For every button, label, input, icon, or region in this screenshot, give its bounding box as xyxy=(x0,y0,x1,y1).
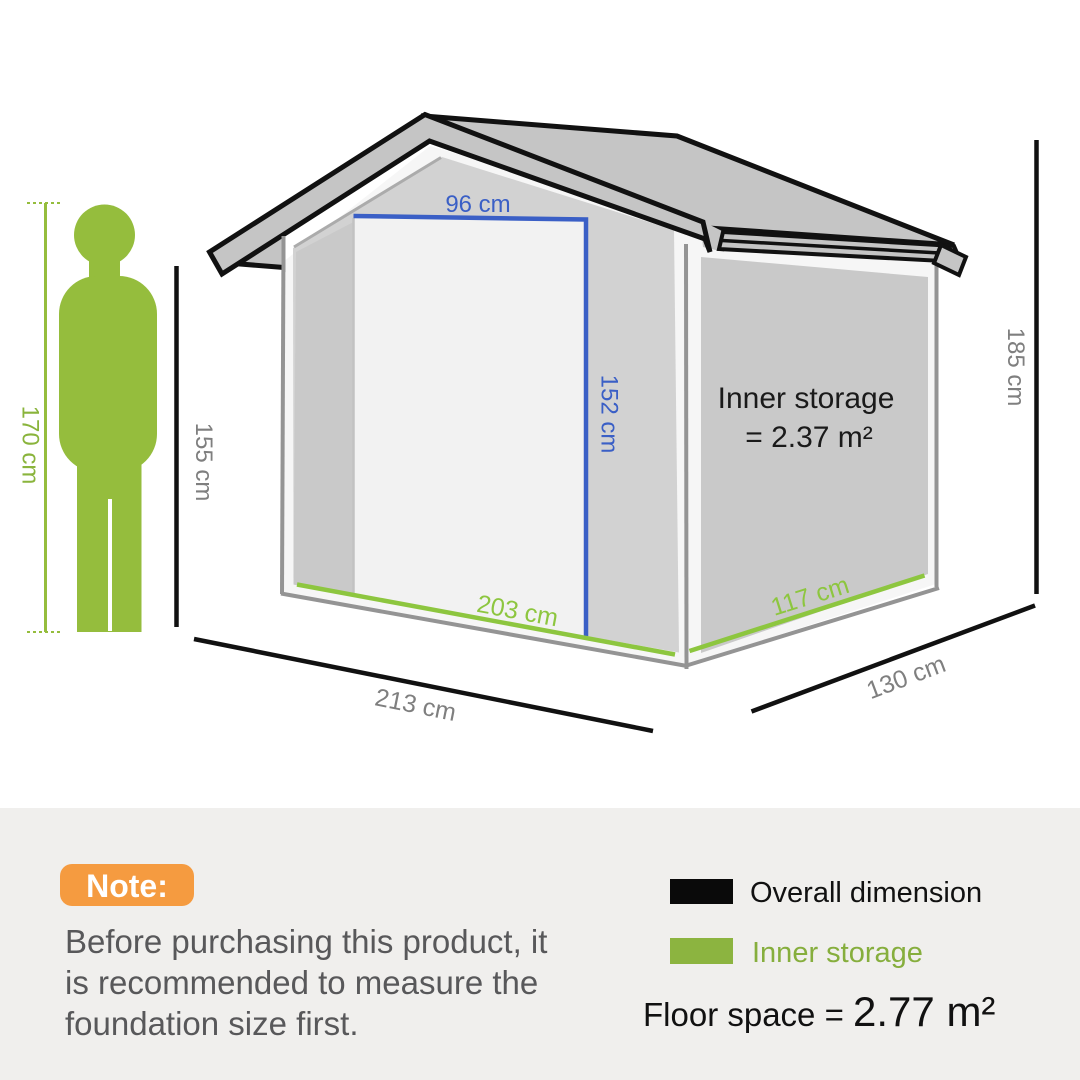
svg-text:Overall dimension: Overall dimension xyxy=(750,877,982,909)
svg-text:152 cm: 152 cm xyxy=(596,375,623,454)
svg-text:foundation size first.: foundation size first. xyxy=(65,1005,359,1042)
svg-text:96 cm: 96 cm xyxy=(445,191,510,218)
svg-text:155 cm: 155 cm xyxy=(190,423,217,502)
svg-text:185 cm: 185 cm xyxy=(1002,328,1029,407)
svg-text:170 cm: 170 cm xyxy=(17,406,44,485)
svg-text:is recommended to measure the: is recommended to measure the xyxy=(65,964,538,1001)
svg-text:Inner storage: Inner storage xyxy=(752,937,923,969)
svg-text:= 2.37 m²: = 2.37 m² xyxy=(745,421,873,454)
svg-text:Note:: Note: xyxy=(86,868,168,904)
svg-text:Inner storage: Inner storage xyxy=(718,382,895,415)
svg-text:Before purchasing this product: Before purchasing this product, it xyxy=(65,923,547,960)
svg-text:Floor space = 2.77 m²: Floor space = 2.77 m² xyxy=(643,988,995,1035)
